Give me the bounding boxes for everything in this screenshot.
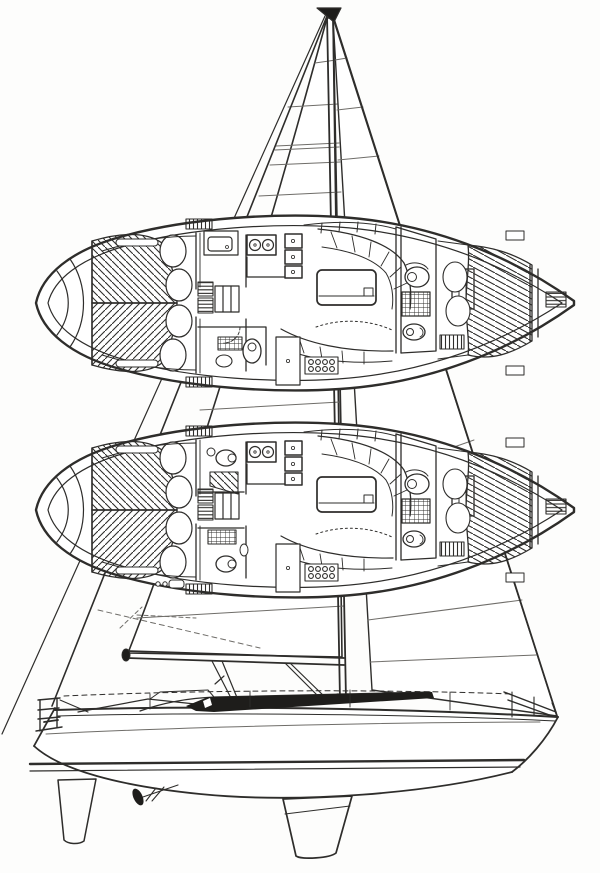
upper-plan-view xyxy=(36,216,574,391)
rudder xyxy=(58,779,96,844)
profile-hull-body xyxy=(34,706,558,795)
profile-hull xyxy=(30,690,558,858)
keel xyxy=(283,796,352,858)
sailboat-technical-drawing xyxy=(0,0,600,873)
boom-end-cap xyxy=(122,649,130,661)
drawing-stage xyxy=(0,0,600,873)
boom-vang xyxy=(212,661,238,700)
